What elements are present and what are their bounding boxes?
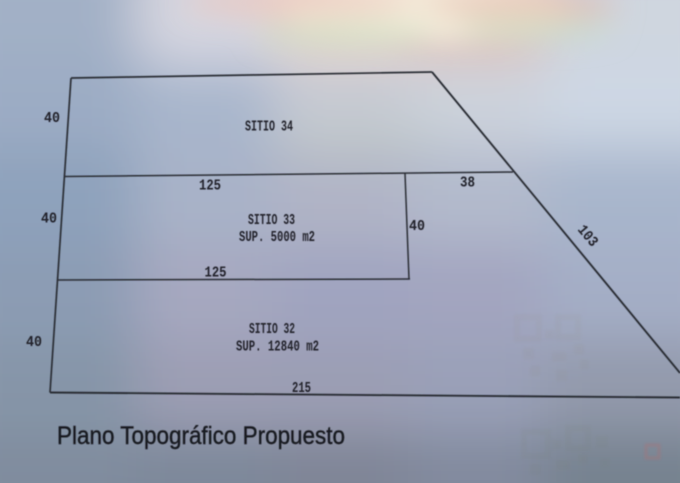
svg-text:103: 103 — [573, 222, 601, 251]
svg-text:SITIO 32: SITIO 32 — [249, 321, 295, 338]
svg-text:125: 125 — [199, 178, 221, 195]
svg-text:215: 215 — [292, 380, 311, 397]
svg-text:40: 40 — [26, 334, 42, 351]
svg-text:Plano Topográfico Propuesto: Plano Topográfico Propuesto — [57, 422, 345, 450]
svg-text:40: 40 — [41, 211, 57, 228]
svg-text:40: 40 — [409, 218, 425, 235]
svg-text:SITIO 33: SITIO 33 — [248, 212, 295, 229]
svg-text:125: 125 — [205, 265, 227, 282]
svg-text:SITIO 34: SITIO 34 — [245, 119, 293, 136]
svg-text:SUP. 5000 m2: SUP. 5000 m2 — [239, 229, 315, 246]
svg-text:38: 38 — [460, 175, 475, 192]
svg-text:SUP. 12840 m2: SUP. 12840 m2 — [236, 339, 319, 356]
svg-text:40: 40 — [44, 110, 60, 127]
